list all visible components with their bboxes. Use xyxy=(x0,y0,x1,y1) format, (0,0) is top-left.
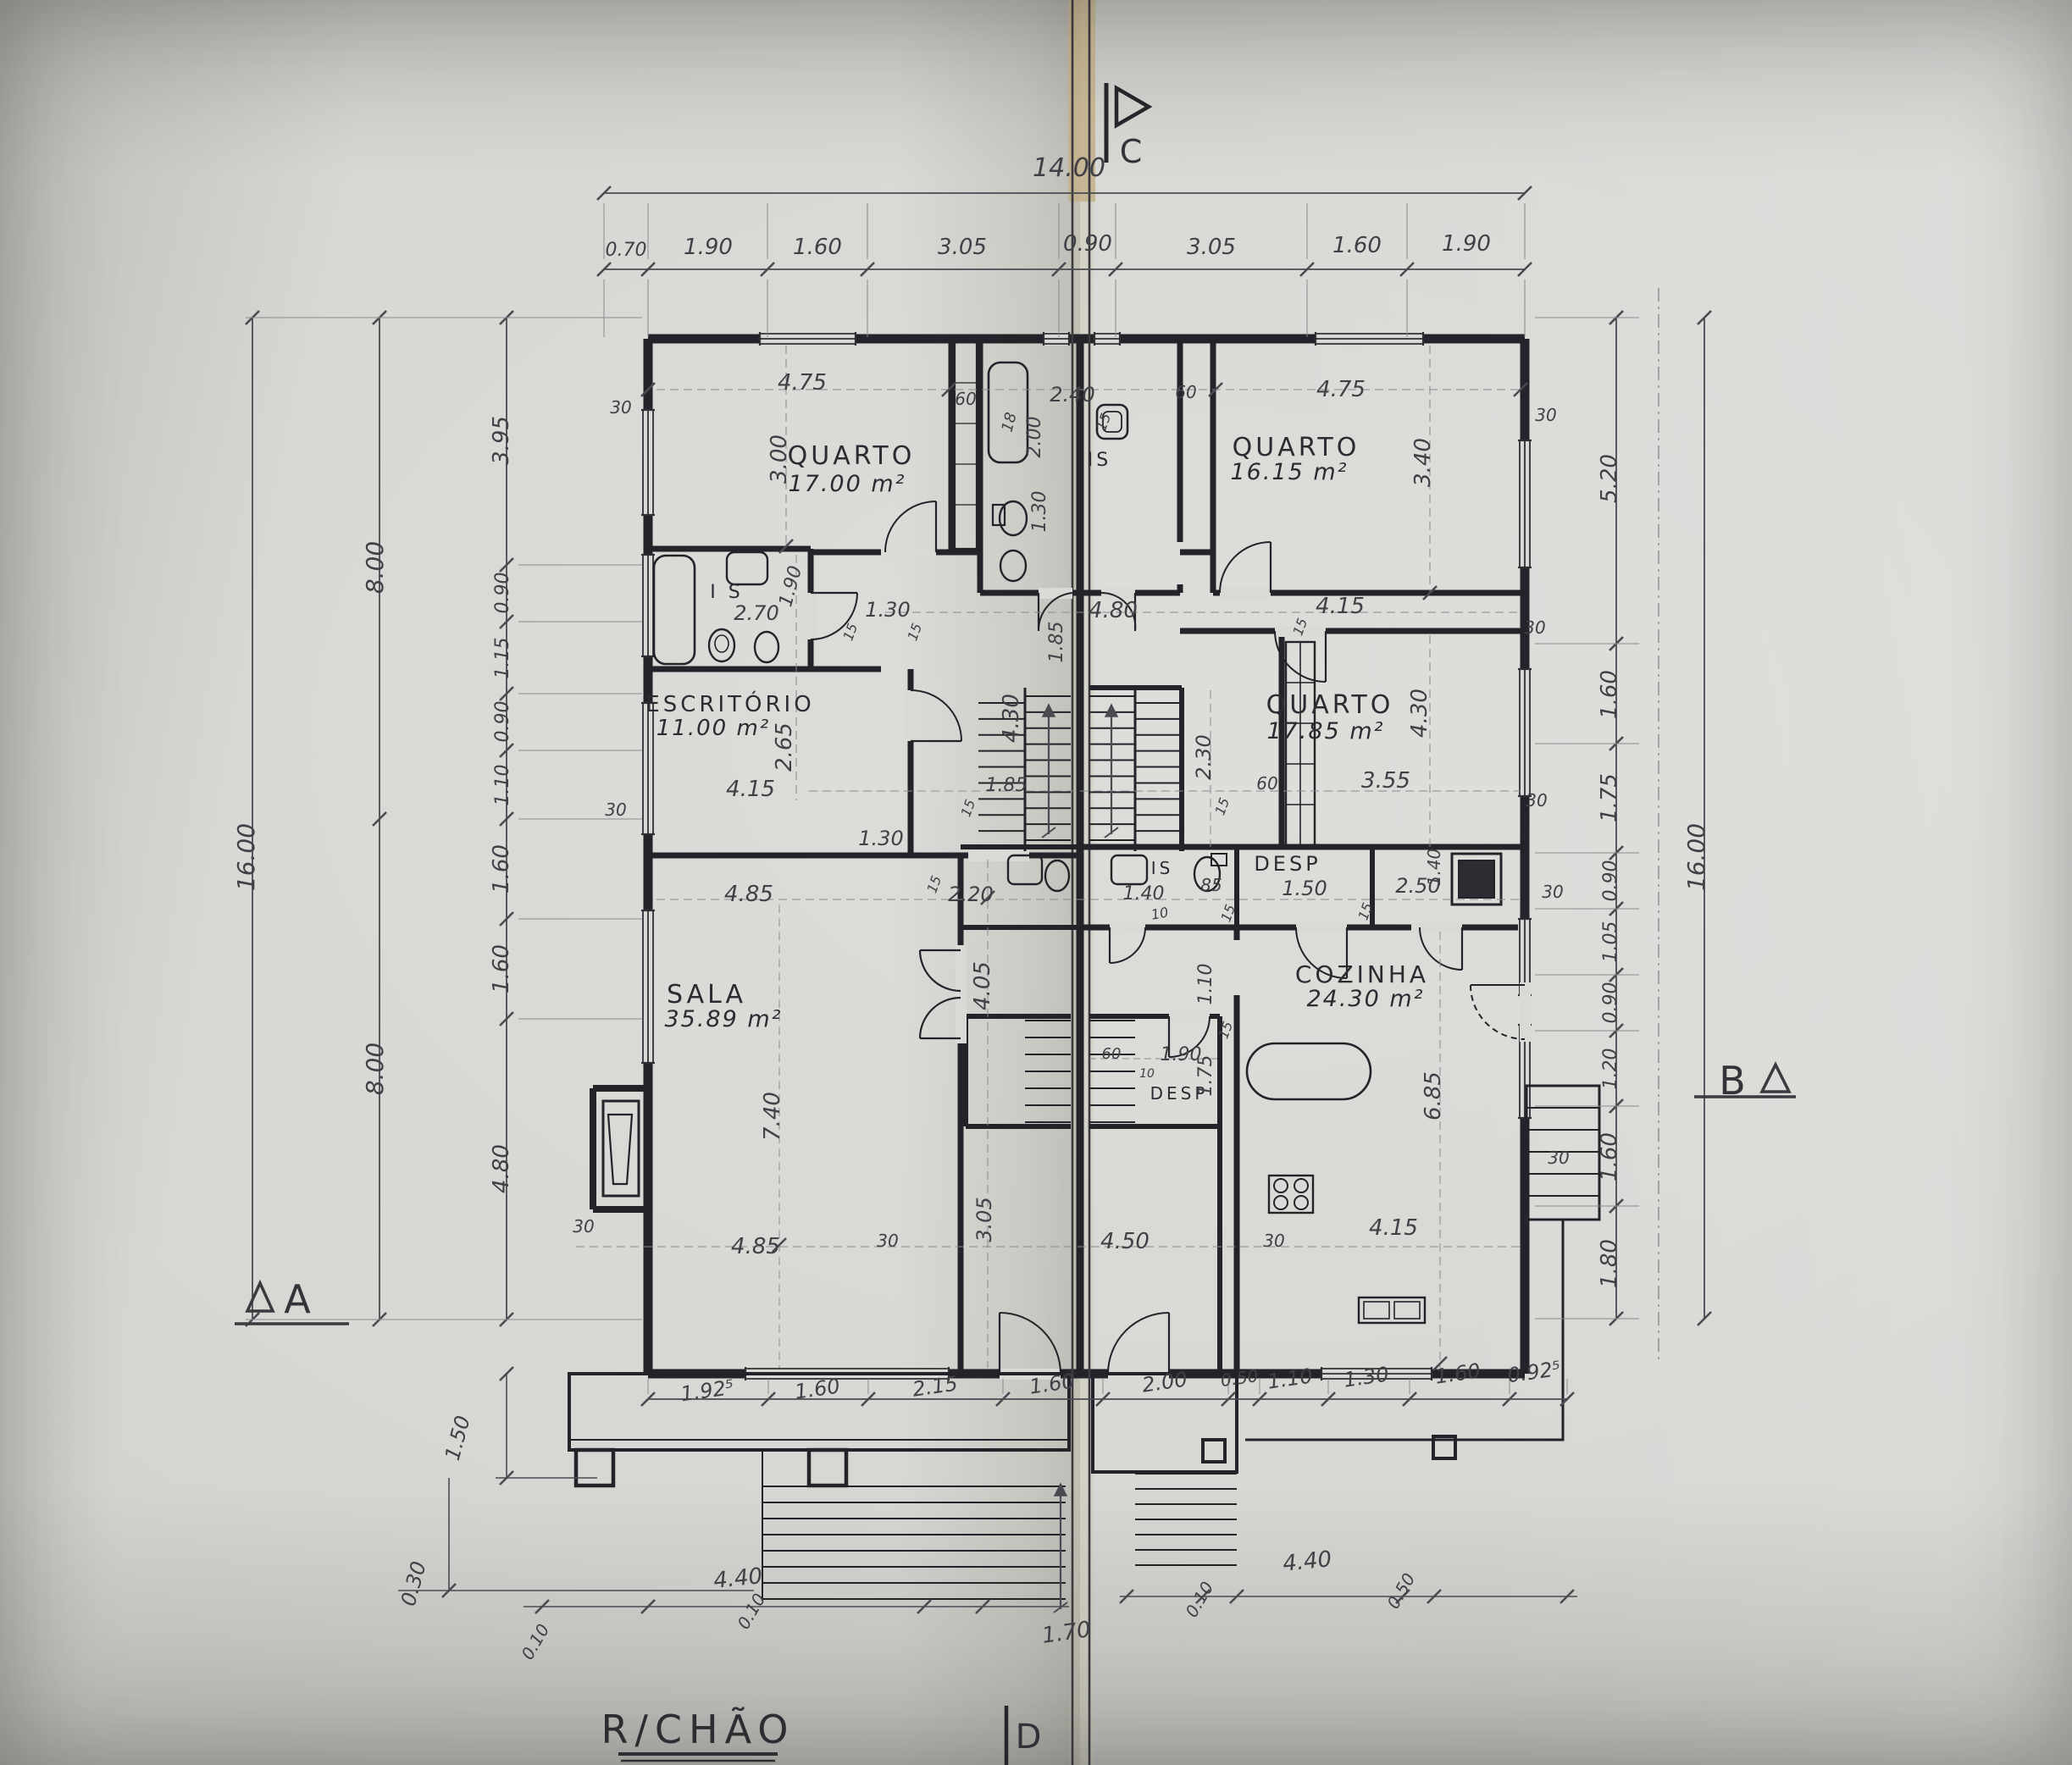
dim-label: 1.50 xyxy=(440,1413,475,1463)
dim-label: 60 xyxy=(1102,1045,1122,1063)
dim-label: 0.30 xyxy=(396,1558,431,1608)
dim-label: 30 xyxy=(1535,405,1556,425)
dim-label: 2.30 xyxy=(1192,734,1216,779)
dim-label: 4.15 xyxy=(1316,594,1365,619)
dim-label: 1.40 xyxy=(1123,883,1165,905)
room-name-is-right: IS xyxy=(1088,450,1111,471)
dim-label: 8.00 xyxy=(361,1043,389,1095)
dim-label: 30 xyxy=(610,397,631,418)
dim-label: 3.00 xyxy=(767,434,792,484)
room-area-sala: 35.89 m² xyxy=(664,1006,782,1032)
dim-label: 0.10 xyxy=(1181,1578,1217,1621)
section-mark-d-label: D xyxy=(1016,1718,1044,1757)
dim-label: 4.30 xyxy=(999,694,1024,743)
dim-label: 30 xyxy=(1263,1231,1284,1251)
dim-label: 15 xyxy=(904,621,925,643)
dim-label: 2.00 xyxy=(1140,1367,1188,1397)
dim-label: 3.05 xyxy=(1187,235,1236,260)
dim-label: 3.40 xyxy=(1410,438,1436,487)
dim-label: 0.10 xyxy=(733,1590,769,1633)
dim-label: 30 xyxy=(877,1231,898,1251)
dim-label: 1.50 xyxy=(1282,877,1327,900)
section-mark-b: B xyxy=(1694,1058,1796,1104)
dim-label: 14.00 xyxy=(1033,153,1105,183)
dim-label: 1.75 xyxy=(1597,773,1622,822)
dim-label: 4.80 xyxy=(1089,598,1138,623)
dim-label: 2.00 xyxy=(1024,417,1045,458)
dim-label: 5.20 xyxy=(1597,454,1622,503)
section-mark-c: C xyxy=(1106,83,1149,170)
room-area-quarto-3: 17.85 m² xyxy=(1266,718,1384,744)
dim-label: 1.85 xyxy=(1046,622,1067,663)
dim-label: 1.20 xyxy=(1600,1048,1621,1090)
floor-plan-svg: C D A B QUARTO 17.00 m² QUARTO 16.15 m² … xyxy=(0,0,2072,1765)
dim-label: 0.70 xyxy=(606,240,647,261)
section-mark-a-label: A xyxy=(284,1276,312,1322)
section-mark-d: D xyxy=(1006,1706,1043,1765)
dim-label: 4.40 xyxy=(712,1563,764,1594)
dim-label: 1.90 xyxy=(684,235,733,260)
dim-label: 2.20 xyxy=(948,882,993,906)
dim-label: 4.30 xyxy=(1407,689,1432,738)
room-area-quarto-2: 16.15 m² xyxy=(1230,459,1348,485)
dim-label: 1.60 xyxy=(1597,1132,1622,1181)
dim-label: 2.40 xyxy=(1050,383,1094,407)
dim-label: 1.70 xyxy=(1040,1617,1093,1649)
dim-label: 2.65 xyxy=(772,722,797,772)
room-name-sala: SALA xyxy=(667,980,746,1010)
dim-label: 7.40 xyxy=(760,1092,785,1141)
dim-label: 1.60 xyxy=(793,235,842,260)
dim-label: 1.60 xyxy=(489,944,514,993)
dim-label: 10 xyxy=(1139,1067,1155,1081)
dim-label: 1.10 xyxy=(1266,1364,1314,1393)
dim-label: 4.15 xyxy=(1369,1215,1418,1241)
dim-label: 1.30 xyxy=(1342,1362,1390,1392)
dim-label: 0.90 xyxy=(1600,982,1621,1024)
dim-label: 30 xyxy=(605,800,626,820)
room-name-quarto-2: QUARTO xyxy=(1233,433,1360,462)
dim-label: 30 xyxy=(1526,790,1547,811)
dim-label: 16.00 xyxy=(1682,823,1710,891)
dim-label: 4.75 xyxy=(778,370,827,396)
dim-label: 1.10 xyxy=(492,765,513,806)
dim-label: 2.70 xyxy=(734,601,778,625)
dim-label: 1.30 xyxy=(865,598,910,622)
dim-label: 1.60 xyxy=(1433,1358,1482,1388)
dim-label: 1.90 xyxy=(1442,231,1491,257)
dim-label: 1.30 xyxy=(1029,491,1050,533)
dim-label: 1.60 xyxy=(1597,670,1622,719)
sheet-title: R/CHÃO xyxy=(601,1707,795,1761)
dim-label: 15 xyxy=(839,621,861,643)
dim-label: 4.50 xyxy=(1100,1229,1150,1254)
dim-label: 30 xyxy=(1524,617,1545,638)
dim-label: 1.10 xyxy=(1195,964,1216,1005)
room-name-is-center: IS xyxy=(1151,858,1174,878)
dim-label: 0.90 xyxy=(492,573,513,614)
room-name-escritorio: ESCRITÓRIO xyxy=(645,690,814,717)
room-area-escritorio: 11.00 m² xyxy=(657,716,770,741)
dim-label: 1.85 xyxy=(986,775,1028,796)
dim-label: 4.80 xyxy=(489,1144,514,1193)
dim-label: 30 xyxy=(1548,1148,1569,1168)
dim-label: 4.40 xyxy=(1282,1546,1333,1577)
dim-label: 3.95 xyxy=(489,416,514,465)
room-area-cozinha: 24.30 m² xyxy=(1306,986,1424,1012)
room-name-is-left: I S xyxy=(710,582,743,603)
dim-label: 2.15 xyxy=(911,1371,959,1401)
page-title: R/CHÃO xyxy=(601,1707,795,1752)
dim-label: 0.90 xyxy=(1600,860,1621,902)
dim-label: 3.55 xyxy=(1361,768,1410,794)
dim-label: 15 xyxy=(923,873,945,895)
dim-label: 16.00 xyxy=(232,823,260,891)
section-mark-c-label: C xyxy=(1120,133,1144,170)
dim-label: 85 xyxy=(1200,875,1222,895)
dim-label: 1.30 xyxy=(858,827,903,850)
dim-label: 60 xyxy=(1256,773,1277,794)
dim-label: 1.80 xyxy=(1597,1239,1622,1288)
room-name-desp-1: DESP xyxy=(1254,852,1321,876)
dim-label: 1.92⁵ xyxy=(679,1375,735,1407)
dim-label: 1.90 xyxy=(1161,1044,1202,1065)
room-name-cozinha: COZINHA xyxy=(1295,960,1429,988)
dim-label: 3.05 xyxy=(972,1197,996,1242)
dim-label: 1.60 xyxy=(1332,233,1382,258)
room-name-quarto-1: QUARTO xyxy=(788,441,916,471)
dim-label: 8.00 xyxy=(361,541,389,594)
dim-label: 60 xyxy=(1175,382,1196,402)
dim-label: 3.05 xyxy=(938,235,987,260)
dim-label: 60 xyxy=(955,389,976,409)
dim-label: 18 xyxy=(999,411,1021,434)
room-name-quarto-3: QUARTO xyxy=(1266,690,1394,720)
dim-label: 1.40 xyxy=(1424,849,1444,887)
dim-label: 15 xyxy=(957,797,978,819)
dim-label: 15 xyxy=(1211,795,1233,817)
dim-label: 0.90 xyxy=(492,701,513,743)
dim-label: 4.85 xyxy=(731,1234,780,1259)
photo-of-floor-plan: C D A B QUARTO 17.00 m² QUARTO 16.15 m² … xyxy=(0,0,2072,1765)
dimension-labels: 14.000.701.901.603.050.903.051.601.903.9… xyxy=(232,153,1710,1663)
dim-label: 6.85 xyxy=(1421,1071,1446,1120)
room-labels: QUARTO 17.00 m² QUARTO 16.15 m² QUARTO 1… xyxy=(645,433,1429,1104)
dim-label: 4.15 xyxy=(726,777,775,802)
dim-label: 0.50 xyxy=(1219,1365,1259,1391)
room-area-quarto-1: 17.00 m² xyxy=(788,471,906,497)
dim-label: 10 xyxy=(1150,904,1169,922)
dim-label: 4.85 xyxy=(724,882,773,907)
dim-label: 0.10 xyxy=(517,1620,553,1663)
dim-label: 4.75 xyxy=(1316,377,1366,402)
dim-label: 0.50 xyxy=(1382,1569,1419,1613)
dim-label: 1.60 xyxy=(489,844,514,894)
dim-label: 30 xyxy=(573,1216,594,1237)
dim-label: 4.05 xyxy=(970,961,995,1010)
dim-label: 0.92⁵ xyxy=(1506,1357,1562,1388)
dim-label: 30 xyxy=(1542,882,1563,902)
dim-label: 1.90 xyxy=(775,563,806,609)
dim-label: 1.15 xyxy=(492,638,513,679)
dim-label: 0.90 xyxy=(1063,231,1112,257)
dim-label: 1.05 xyxy=(1600,921,1621,963)
